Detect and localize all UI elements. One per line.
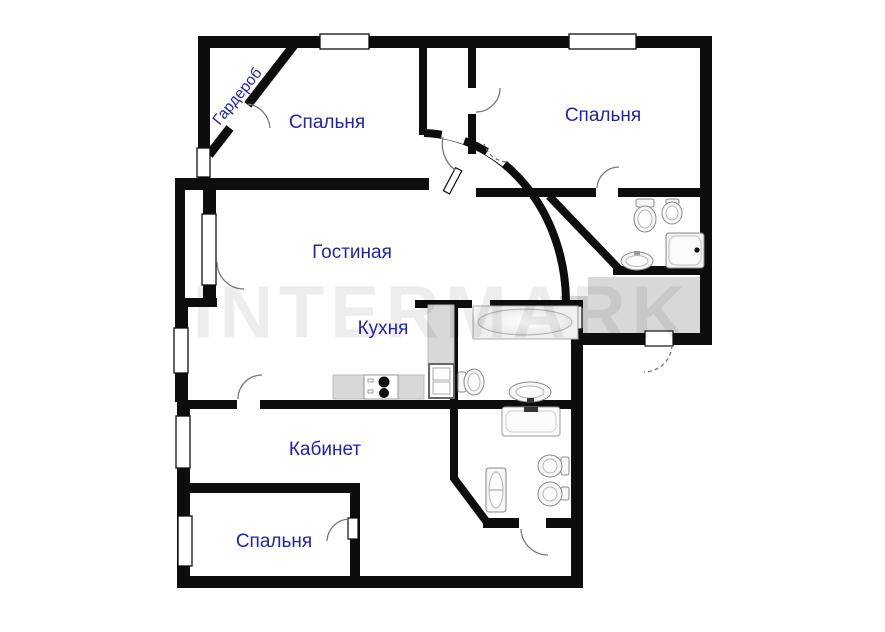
- room-label-bedroom-bottom: Спальня: [236, 531, 312, 553]
- bedroom2-ensuite-door-arc: [597, 167, 619, 188]
- bathroom-b-door-arc: [521, 529, 548, 555]
- washing-machine-icon: [502, 407, 560, 436]
- corridor-door-leaf: [443, 168, 461, 194]
- watermark: INTERMARK: [193, 270, 691, 355]
- window-living-room: [174, 328, 188, 373]
- closet-door-arc: [476, 88, 500, 112]
- room-label-living-room: Гостиная: [312, 242, 392, 264]
- bidet-icon: [662, 199, 682, 224]
- bidet-icon: [538, 482, 569, 506]
- office-door-arc: [238, 375, 262, 399]
- room-label-kitchen: Кухня: [358, 318, 409, 340]
- corridor-door-arc-1: [442, 137, 455, 170]
- room-label-bedroom-top-right: Спальня: [565, 105, 641, 127]
- floor-plan: INTERMARK: [0, 0, 885, 632]
- toilet-icon: [458, 369, 484, 395]
- washbasin-icon: [621, 251, 653, 270]
- toilet-icon: [538, 455, 569, 477]
- kitchen-sink-icon: [429, 364, 454, 398]
- window-top-left: [320, 34, 369, 49]
- room-label-bedroom-top-left: Спальня: [289, 112, 365, 134]
- window-bedroom-bottom: [178, 516, 192, 566]
- room-label-office: Кабинет: [289, 439, 361, 461]
- toilet-icon: [634, 199, 656, 232]
- stove-icon: [364, 375, 398, 399]
- bedroom-bottom-door-leaf: [348, 518, 358, 539]
- bathroom-diagonal-wall: [453, 477, 489, 525]
- washbasin-icon: [486, 468, 506, 512]
- window-top-right: [569, 34, 636, 49]
- washbasin-icon: [509, 382, 551, 403]
- bedroom-bottom-door-arc: [327, 519, 349, 541]
- shower-cabin-icon: [666, 233, 704, 268]
- window-bedroom1: [197, 148, 210, 177]
- window-office: [176, 416, 190, 468]
- wardrobe-diagonal-wall: [209, 40, 298, 155]
